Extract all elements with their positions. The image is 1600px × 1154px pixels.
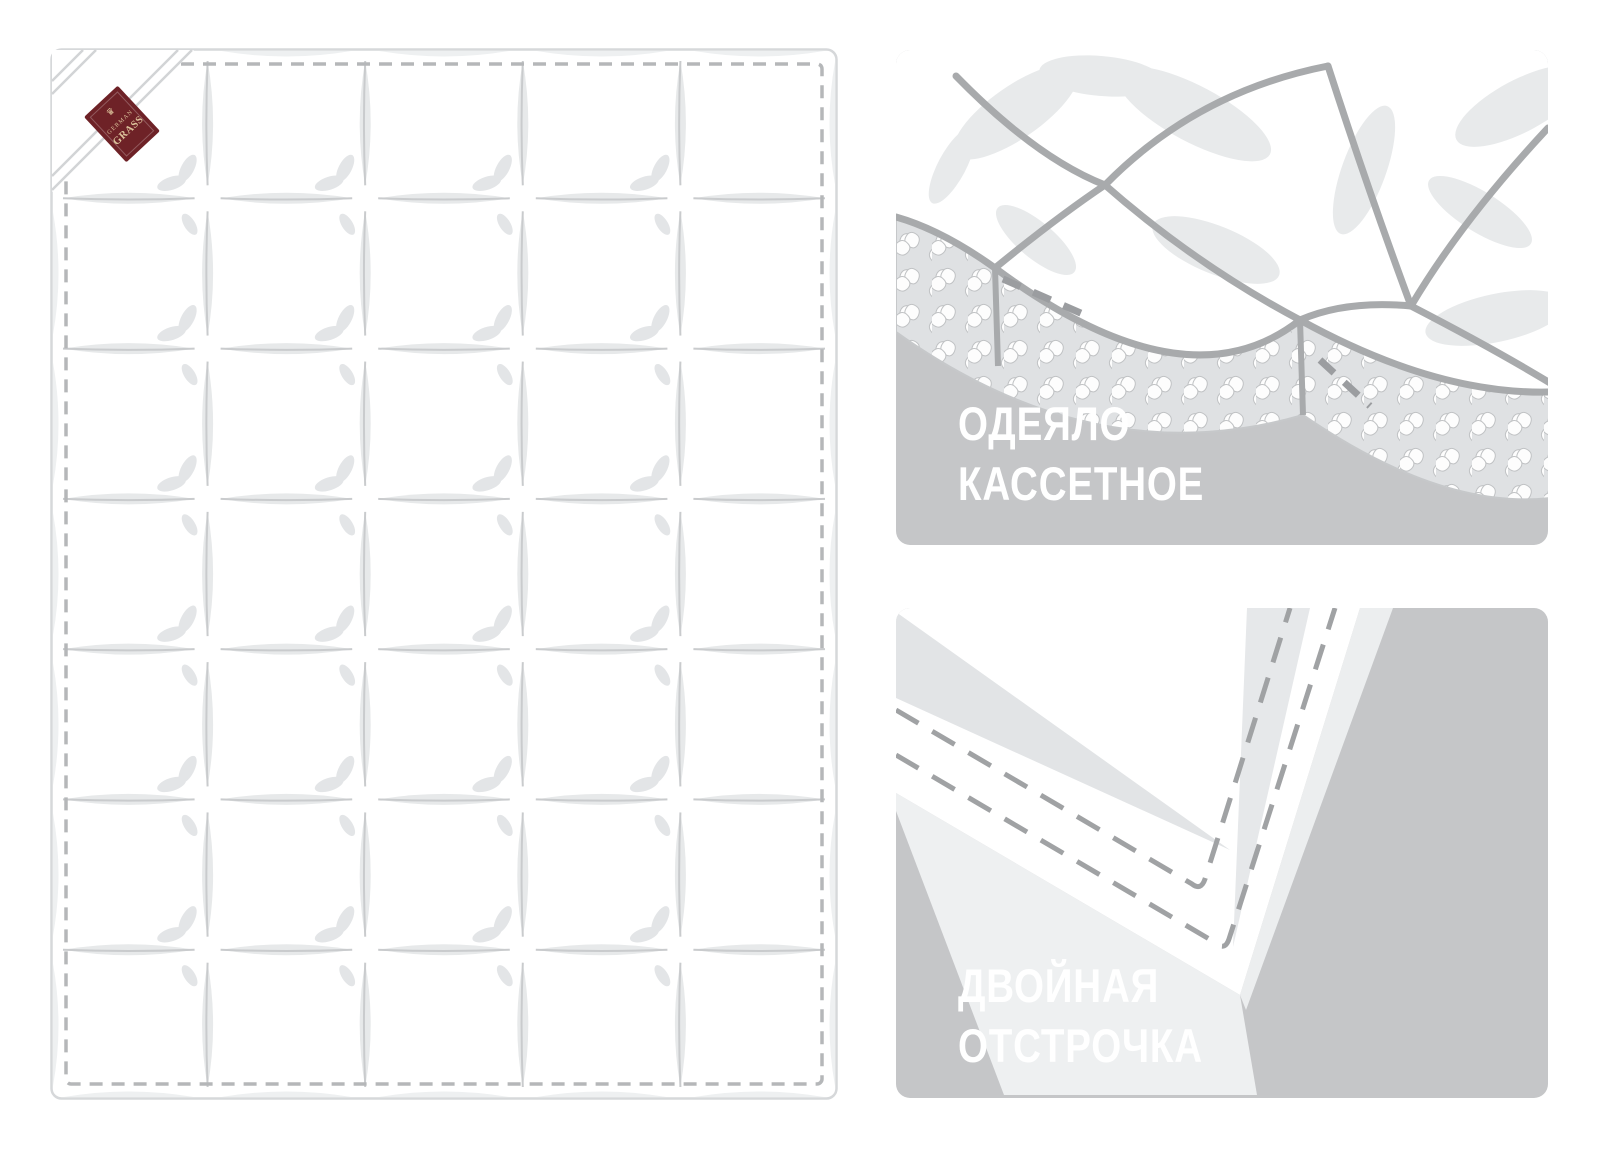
feature-text-line: ДВОЙНАЯ (958, 956, 1203, 1016)
feature-text-line: КАССЕТНОЕ (958, 454, 1204, 514)
feature-text-line: ОДЕЯЛО (958, 394, 1204, 454)
feature-text-line: ОТСТРОЧКА (958, 1016, 1203, 1076)
quilt-illustration: ♛GERMANGRASS (50, 48, 838, 1100)
feature-card-double-stitch: ДВОЙНАЯ ОТСТРОЧКА (896, 608, 1548, 1098)
product-infographic: ♛GERMANGRASS (0, 0, 1600, 1154)
feature-label-cassette: ОДЕЯЛО КАССЕТНОЕ (958, 394, 1204, 514)
feature-card-cassette: ОДЕЯЛО КАССЕТНОЕ (896, 50, 1548, 545)
feature-label-double-stitch: ДВОЙНАЯ ОТСТРОЧКА (958, 956, 1203, 1076)
quilt-svg: ♛GERMANGRASS (50, 48, 838, 1100)
